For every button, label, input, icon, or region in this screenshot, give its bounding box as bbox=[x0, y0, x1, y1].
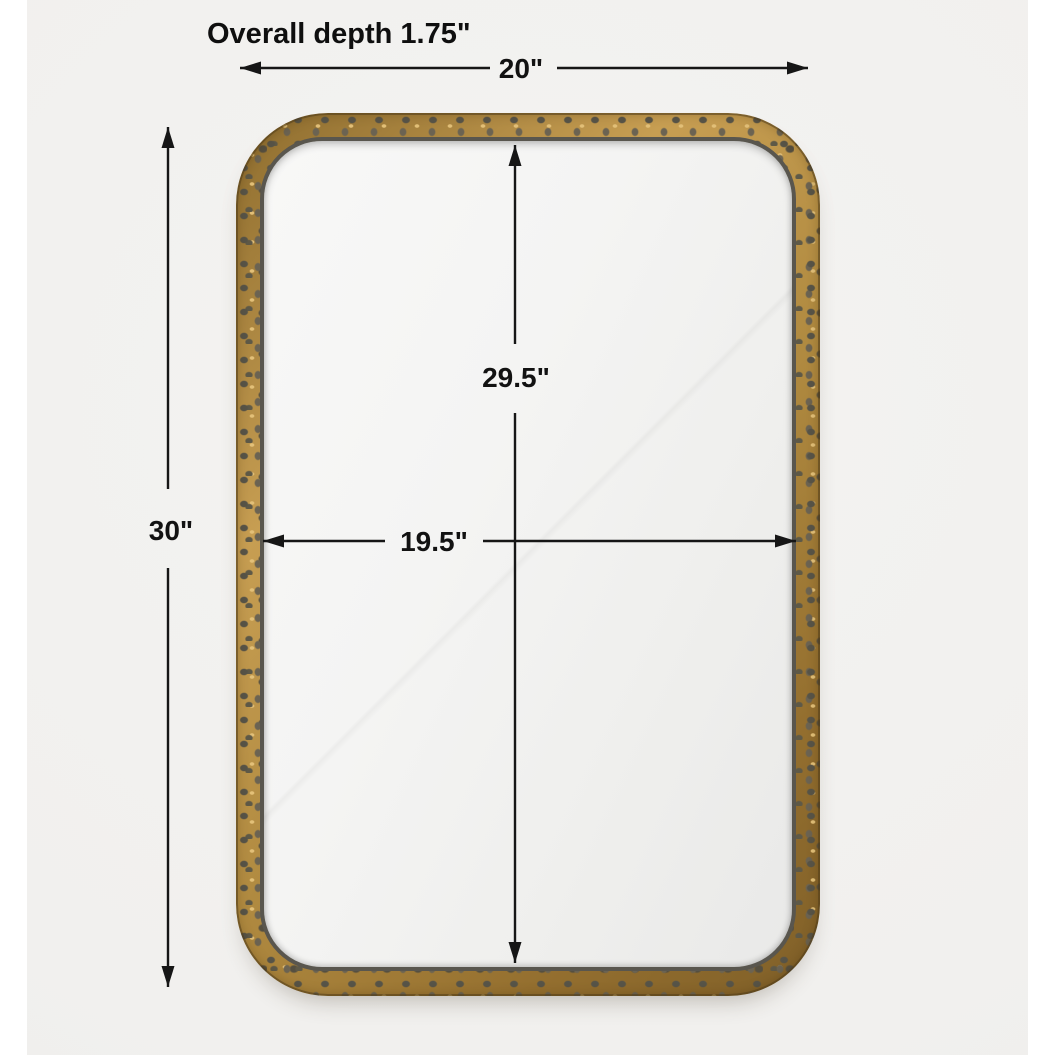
product-dimension-diagram: Overall depth 1.75" 20" 30" 29.5" 19.5" bbox=[0, 0, 1055, 1055]
inner-height-label: 29.5" bbox=[482, 364, 550, 392]
overall-depth-label: Overall depth 1.75" bbox=[207, 20, 471, 49]
inner-width-label: 19.5" bbox=[400, 528, 468, 556]
overall-height-label: 30" bbox=[149, 517, 193, 545]
overall-width-label: 20" bbox=[499, 55, 543, 83]
